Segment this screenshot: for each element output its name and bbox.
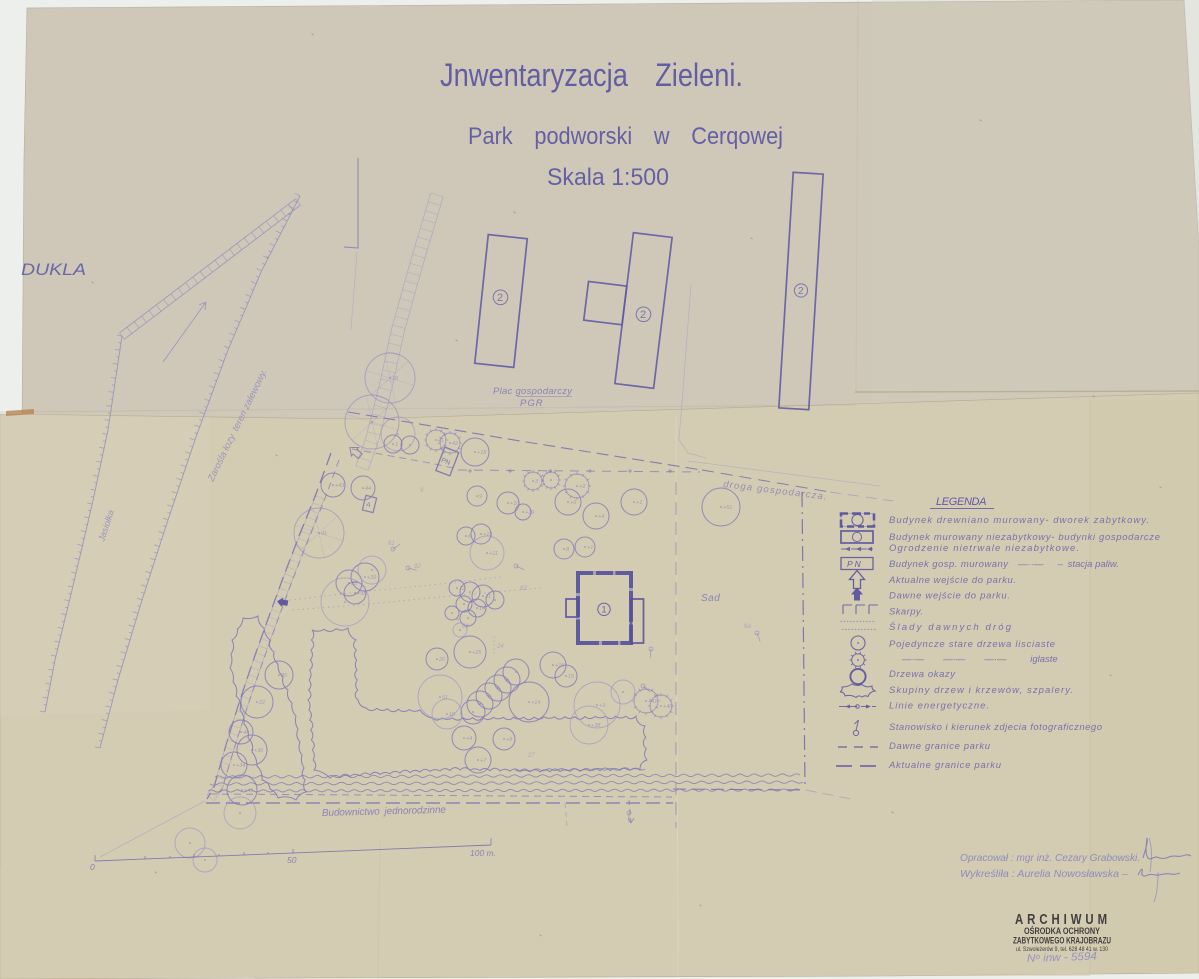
svg-text:+6: +6 xyxy=(570,500,577,506)
svg-text:Dawne wejście do parku.: Dawne wejście do parku. xyxy=(889,591,1010,602)
svg-text:14: 14 xyxy=(479,606,485,612)
svg-text:—·— —·— —·— iglaste: —·— —·— —·— iglaste xyxy=(901,654,1058,665)
svg-text:Aktualne granice parku: Aktualne granice parku xyxy=(888,760,1002,771)
svg-text:44: 44 xyxy=(365,486,371,492)
svg-text:Jnwentaryzacja Zieleni.: Jnwentaryzacja Zieleni. xyxy=(440,57,743,93)
svg-text:+40: +40 xyxy=(663,704,673,710)
svg-text:1: 1 xyxy=(395,442,398,448)
svg-text:PGR: PGR xyxy=(520,398,544,409)
svg-text:42: 42 xyxy=(452,441,458,447)
svg-text:+1: +1 xyxy=(587,545,593,551)
svg-text:+51: +51 xyxy=(723,505,732,511)
svg-text:Nᵒ inw - 5594: Nᵒ inw - 5594 xyxy=(1027,951,1097,965)
svg-text:+38: +38 xyxy=(591,723,601,729)
svg-text:Drzewa okazy: Drzewa okazy xyxy=(889,669,956,680)
svg-text:Skupiny drzew i krzewów, szpal: Skupiny drzew i krzewów, szpalery. xyxy=(889,685,1073,696)
svg-text:OŚRODKA OCHRONY: OŚRODKA OCHRONY xyxy=(1024,925,1100,936)
svg-text:41: 41 xyxy=(321,531,327,537)
svg-text:Park podworski w Cerqowej: Park podworski w Cerqowej xyxy=(468,122,783,149)
svg-text:—··— – stacja paliw.: —··— – stacja paliw. xyxy=(1017,559,1119,570)
svg-text:Budynek drewniano murowany- dw: Budynek drewniano murowany- dworek zabyt… xyxy=(889,515,1149,526)
svg-text:+14: +14 xyxy=(531,700,540,706)
svg-text:+7: +7 xyxy=(480,758,487,764)
svg-text:+39: +39 xyxy=(367,575,376,581)
svg-text:0: 0 xyxy=(90,862,95,872)
svg-text:+8: +8 xyxy=(506,737,513,743)
svg-text:PN: PN xyxy=(847,559,863,569)
svg-text:LEGENDA: LEGENDA xyxy=(936,496,988,508)
svg-text:+16: +16 xyxy=(555,663,565,669)
svg-text:Sad: Sad xyxy=(701,593,720,604)
svg-text:Dawne granice parku: Dawne granice parku xyxy=(889,741,991,752)
svg-text:+41: +41 xyxy=(648,699,657,705)
svg-text:+2: +2 xyxy=(579,484,585,490)
svg-text:1: 1 xyxy=(602,605,607,615)
svg-text:+38: +38 xyxy=(357,591,367,597)
svg-text:Opracował : mgr inż. Cezary Gr: Opracował : mgr inż. Cezary Grabowski. xyxy=(960,852,1140,864)
svg-text:+25: +25 xyxy=(472,650,482,656)
svg-text:85: 85 xyxy=(281,673,288,679)
svg-text:27: 27 xyxy=(527,753,535,759)
svg-text:+18: +18 xyxy=(477,450,487,456)
svg-text:+43: +43 xyxy=(335,483,345,489)
svg-text:+45: +45 xyxy=(244,788,254,794)
svg-text:2: 2 xyxy=(798,286,804,297)
svg-text:Plac gospodarczy: Plac gospodarczy xyxy=(493,386,573,397)
svg-text:Budynek gosp. murowany: Budynek gosp. murowany xyxy=(889,559,1009,570)
svg-text:+36: +36 xyxy=(254,748,264,754)
svg-text:Pojedyncze stare drzewa lisc: Pojedyncze stare drzewa lisciaste xyxy=(889,639,1055,650)
svg-text:+11: +11 xyxy=(489,551,498,557)
svg-text:26: 26 xyxy=(438,657,446,663)
svg-text:10: 10 xyxy=(449,712,456,718)
svg-text:Aktualne wejście do parku.: Aktualne wejście do parku. xyxy=(888,575,1016,586)
svg-text:+10: +10 xyxy=(510,501,520,507)
svg-text:51: 51 xyxy=(442,695,448,701)
svg-text:61: 61 xyxy=(388,541,395,547)
svg-text:Skala 1:500: Skala 1:500 xyxy=(547,163,669,190)
svg-text:2: 2 xyxy=(640,309,646,321)
svg-text:+15: +15 xyxy=(483,532,493,538)
svg-text:50: 50 xyxy=(287,855,297,865)
svg-text:Stanowisko i kierunek zdjecia: Stanowisko i kierunek zdjecia fotografic… xyxy=(889,722,1102,733)
svg-text:Budynek murowany niezabytkowy-: Budynek murowany niezabytkowy- budynki g… xyxy=(889,532,1160,543)
svg-text:9: 9 xyxy=(479,494,482,500)
svg-text:2: 2 xyxy=(497,292,503,304)
svg-text:Wykreśliła : Aurelia Nowosławs: Wykreśliła : Aurelia Nowosławska – xyxy=(960,868,1128,880)
svg-text:+4: +4 xyxy=(466,736,472,742)
svg-text:24: 24 xyxy=(496,644,504,650)
svg-text:+34: +34 xyxy=(236,763,245,769)
svg-text:63: 63 xyxy=(520,586,527,592)
svg-text:19: 19 xyxy=(392,376,398,382)
svg-text:ZABYTKOWEGO KRAJOBRAZU: ZABYTKOWEGO KRAJOBRAZU xyxy=(1013,936,1111,946)
svg-text:+1: +1 xyxy=(636,500,642,506)
svg-text:92: 92 xyxy=(414,564,421,570)
svg-text:DUKLA: DUKLA xyxy=(21,261,86,279)
svg-text:+19: +19 xyxy=(525,510,534,516)
svg-text:Ogrodzenie nietrwale niezabyt: Ogrodzenie nietrwale niezabytkowe. xyxy=(889,543,1079,554)
svg-text:15: 15 xyxy=(568,674,575,680)
svg-text:100 m.: 100 m. xyxy=(470,848,496,858)
svg-text:Linie energetyczne.: Linie energetyczne. xyxy=(889,701,989,712)
svg-text:6a: 6a xyxy=(744,624,751,630)
svg-text:+4: +4 xyxy=(598,514,604,520)
svg-text:+3: +3 xyxy=(599,703,606,709)
svg-text:22: 22 xyxy=(258,700,265,706)
svg-text:Skarpy.: Skarpy. xyxy=(889,607,923,618)
